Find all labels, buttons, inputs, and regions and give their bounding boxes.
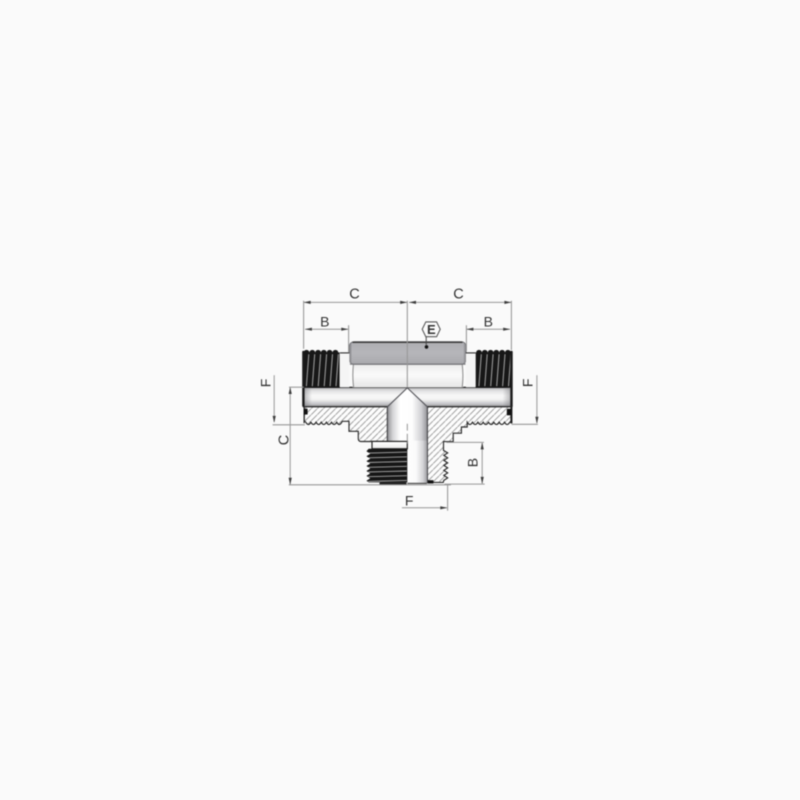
svg-text:C: C xyxy=(349,286,359,302)
svg-text:B: B xyxy=(484,313,493,329)
svg-text:B: B xyxy=(464,458,480,467)
svg-text:F: F xyxy=(405,492,414,508)
svg-text:C: C xyxy=(453,286,463,302)
svg-text:E: E xyxy=(427,322,436,337)
svg-text:F: F xyxy=(258,379,274,388)
svg-text:C: C xyxy=(276,435,292,445)
svg-text:B: B xyxy=(320,313,329,329)
svg-text:F: F xyxy=(520,379,536,388)
